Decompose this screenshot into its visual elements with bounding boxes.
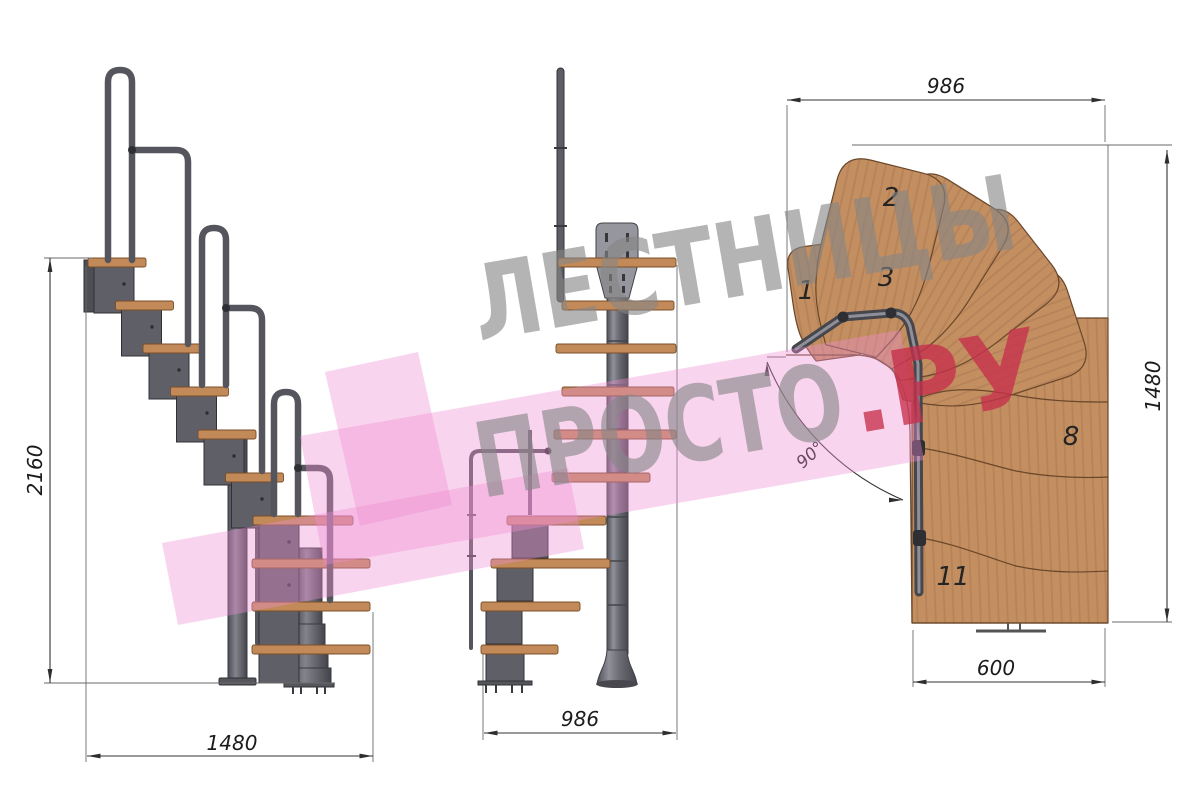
step-label-11: 11 — [936, 562, 969, 592]
plan-width-dimension: 986 — [927, 74, 965, 98]
side-elevation-view: 2160 1480 — [23, 70, 373, 762]
plan-depth-dimension: 1480 — [1141, 361, 1165, 412]
mast-base-mark — [976, 623, 1046, 631]
staircase-drawing: 2160 1480 — [0, 0, 1200, 807]
technical-drawing-canvas: 2160 1480 — [0, 0, 1200, 807]
step-label-8: 8 — [1063, 422, 1080, 452]
front-dimensions: 986 — [484, 707, 676, 735]
side-width-dimension: 1480 — [207, 731, 258, 755]
plan-exit-width-dimension: 600 — [977, 656, 1015, 680]
side-height-dimension: 2160 — [23, 445, 47, 496]
front-width-dimension: 986 — [561, 707, 599, 731]
